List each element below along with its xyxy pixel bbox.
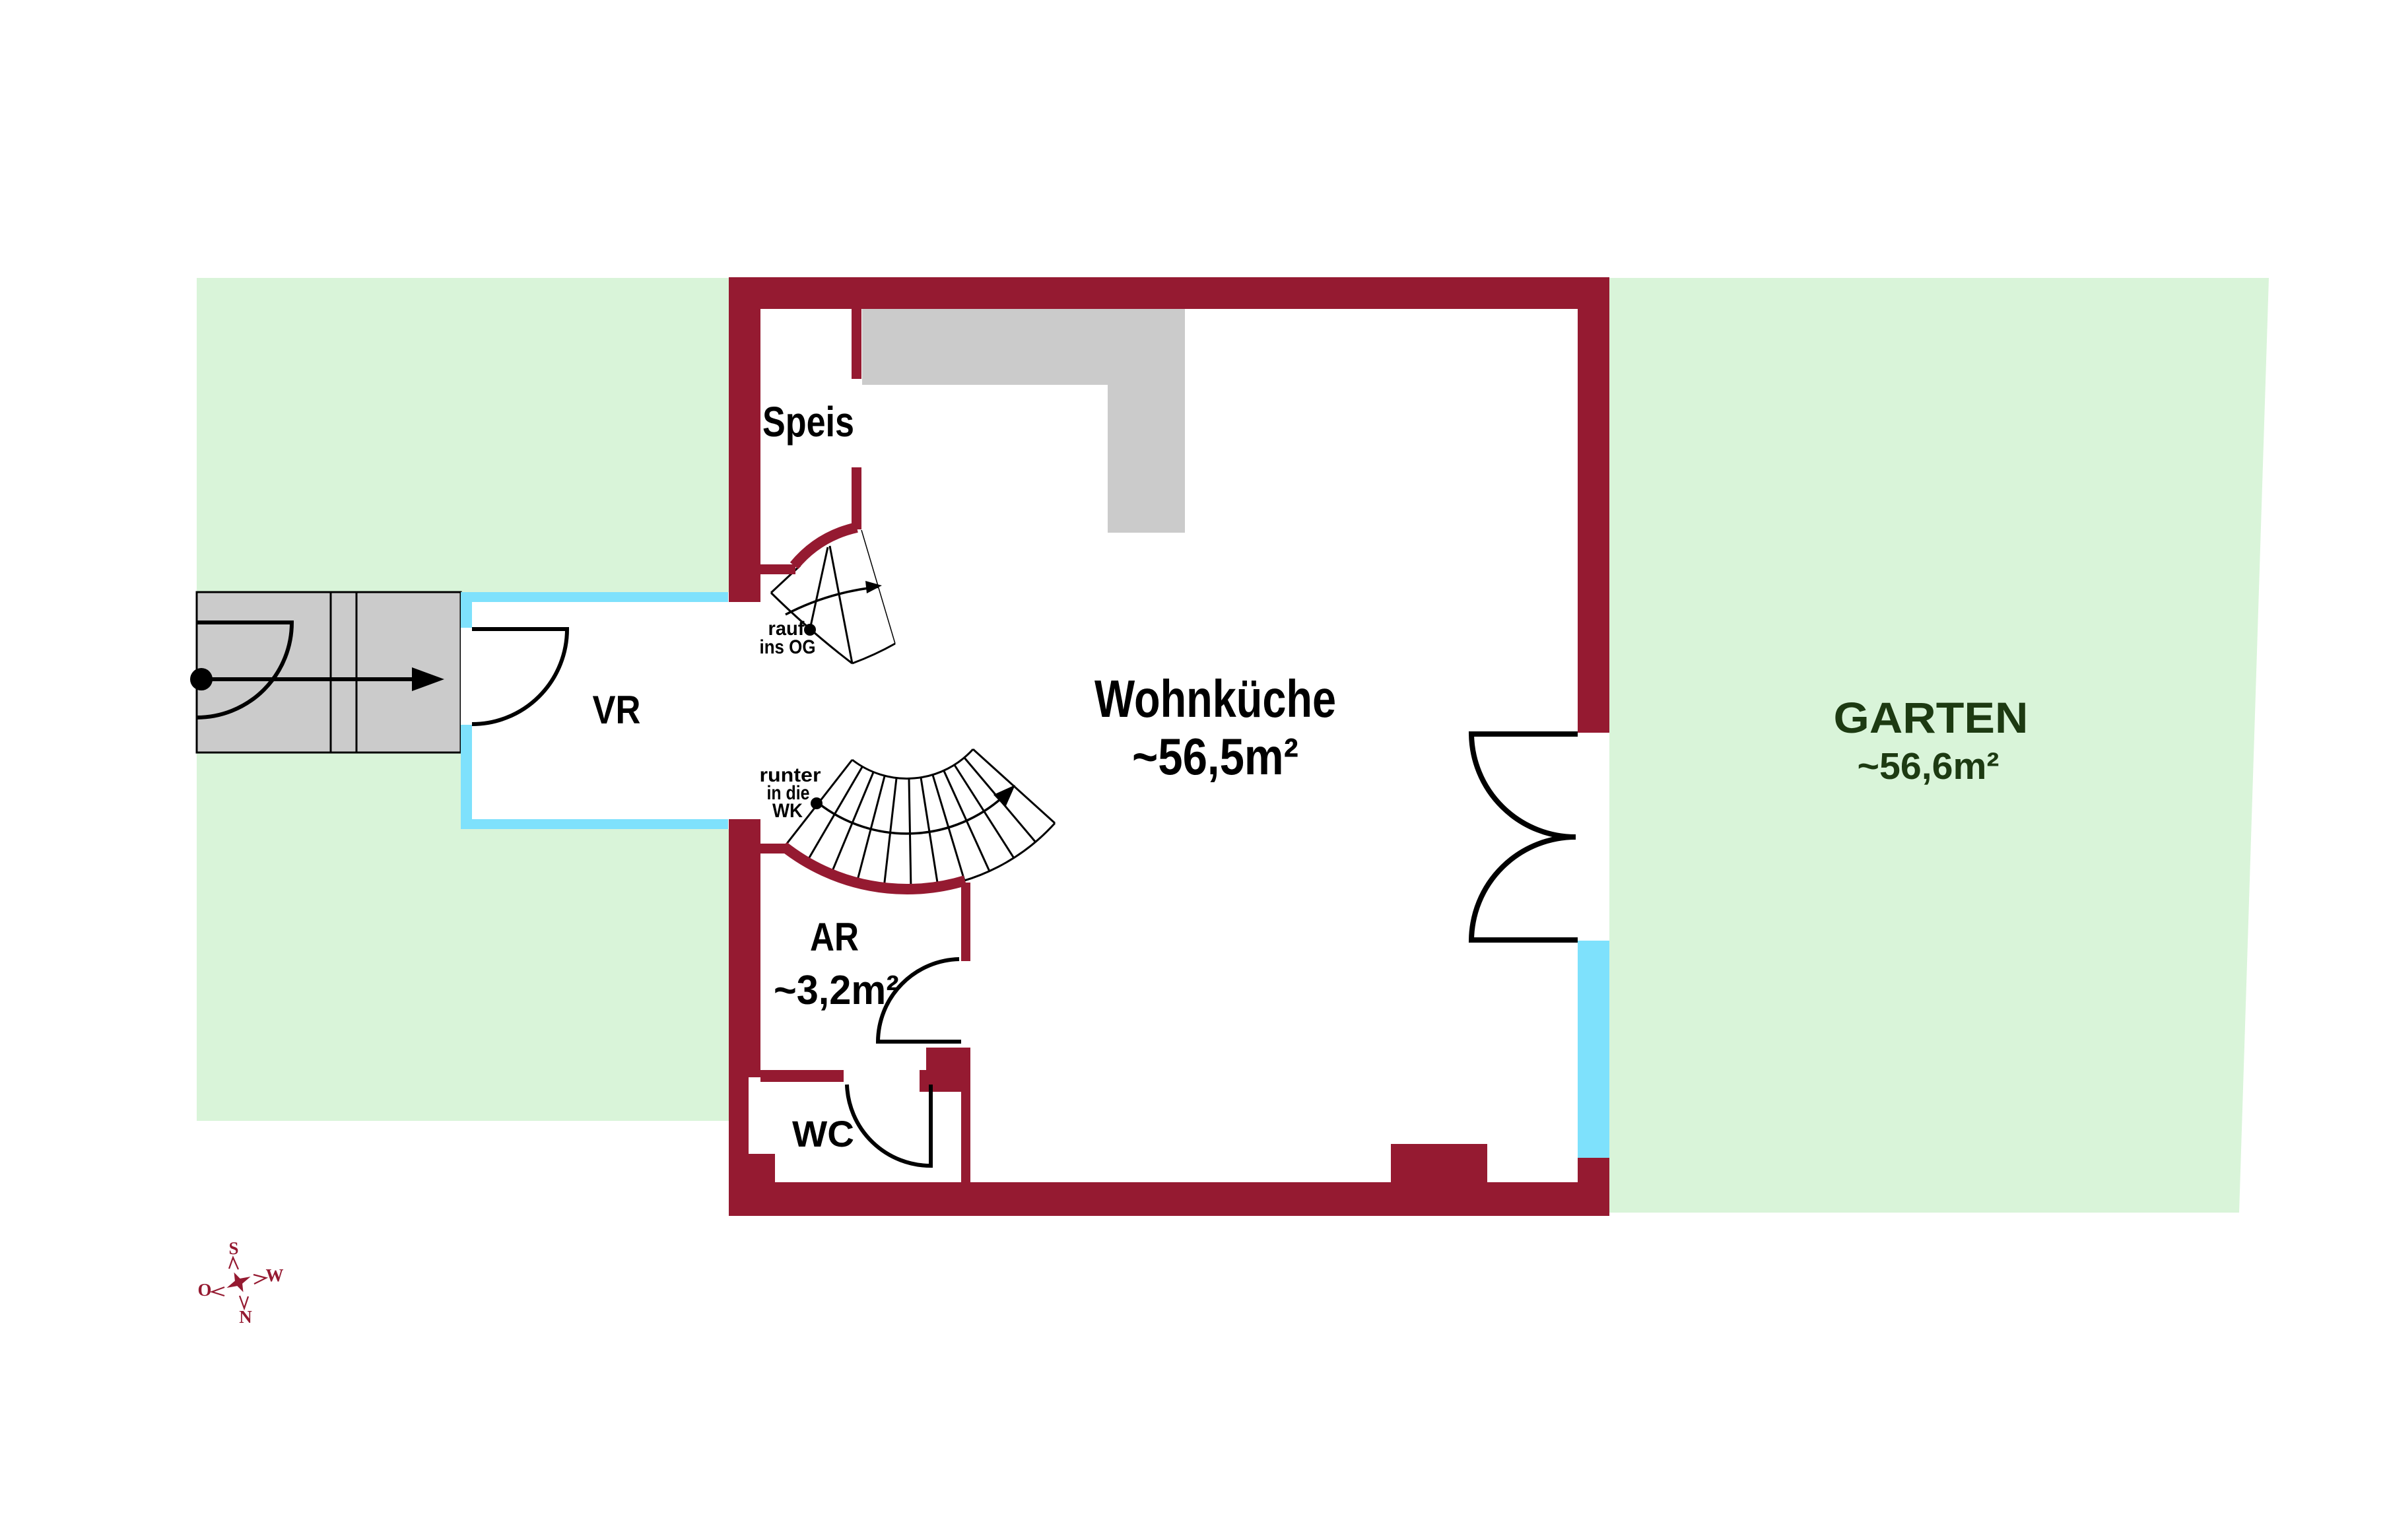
svg-text:~56,6m²: ~56,6m² (1858, 745, 2000, 787)
svg-text:GARTEN: GARTEN (1834, 693, 2029, 742)
svg-text:~56,5m²: ~56,5m² (1132, 727, 1298, 786)
svg-text:O: O (197, 1280, 211, 1300)
svg-text:~3,2m²: ~3,2m² (774, 968, 899, 1013)
svg-text:AR: AR (810, 915, 859, 959)
svg-text:N: N (239, 1307, 252, 1327)
svg-text:VR: VR (593, 688, 641, 732)
svg-text:W: W (266, 1265, 284, 1285)
svg-text:Speis: Speis (762, 398, 854, 446)
svg-text:ins OG: ins OG (760, 636, 816, 658)
svg-text:Wohnküche: Wohnküche (1094, 669, 1336, 728)
svg-text:WK: WK (772, 800, 803, 822)
svg-text:S: S (228, 1238, 238, 1258)
svg-text:WC: WC (792, 1113, 854, 1155)
